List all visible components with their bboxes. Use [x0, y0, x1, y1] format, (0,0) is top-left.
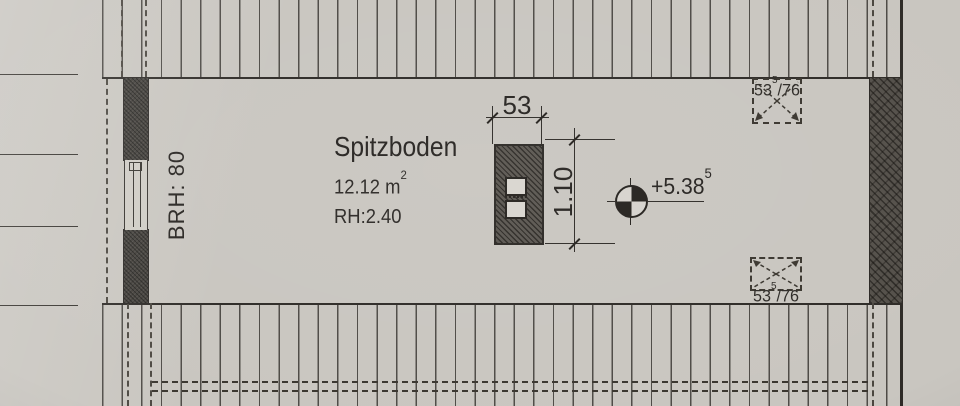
- hidden-wall-edge: [872, 303, 874, 406]
- chimney: [494, 144, 544, 245]
- flue-divider-dotted: [505, 196, 527, 198]
- room-area-value: 12.12 m: [334, 177, 400, 199]
- rwin-size: 53: [753, 287, 771, 306]
- hidden-wall-edge: [145, 0, 147, 77]
- room-name-label: Spitzboden: [334, 131, 457, 163]
- left-window: [124, 160, 148, 230]
- dim-extension-line: [545, 243, 615, 244]
- left-wall-lower: [124, 230, 148, 303]
- roof-window-top-label: 535/76: [748, 80, 807, 101]
- elevation-sup: 5: [705, 166, 712, 182]
- adjacent-structure-line: [0, 154, 78, 155]
- rwin-size: 53: [754, 81, 772, 100]
- elevation-crosshair-tick: [607, 201, 616, 202]
- elevation-crosshair-tick: [630, 178, 631, 186]
- hidden-eaves-line: [106, 79, 108, 303]
- rwin-sup: 5: [772, 74, 778, 86]
- right-gable-wall: [869, 78, 902, 303]
- adjacent-structure-line: [0, 305, 78, 306]
- adjacent-structure-line: [0, 226, 78, 227]
- hidden-wall-edge: [872, 0, 874, 77]
- collar-beam-dashed-line: [152, 381, 868, 383]
- dim-label-53: 53: [489, 90, 545, 121]
- elevation-marker-icon: [615, 185, 648, 218]
- elevation-crosshair-tick: [630, 217, 631, 225]
- flue-opening-lower: [505, 200, 527, 219]
- window-sill-height-label: BRH: 80: [159, 149, 195, 241]
- collar-beam-dashed-line: [152, 390, 868, 392]
- room-area-sup: 2: [400, 168, 406, 182]
- roof-rafters-top: [102, 0, 902, 79]
- hidden-wall-edge: [150, 303, 152, 406]
- rwin-rest: /76: [777, 287, 799, 306]
- flue-opening-upper: [505, 177, 527, 196]
- dim-extension-line: [545, 139, 615, 140]
- floor-plan-sheet: BRH: 80 Spitzboden 12.12 m2 RH:2.40 53 1…: [0, 0, 960, 406]
- roof-window-bottom-label: 535/76: [746, 286, 807, 307]
- adjacent-structure-line: [0, 74, 78, 75]
- elevation-value-label: +5.385: [651, 173, 712, 200]
- hidden-wall-edge: [127, 303, 129, 406]
- room-area-label: 12.12 m2: [334, 175, 407, 200]
- brh-text: BRH: 80: [164, 150, 190, 240]
- left-wall-upper: [124, 78, 148, 160]
- window-frame-block: [129, 162, 142, 171]
- dim-110-text: 1.10: [548, 167, 579, 218]
- rwin-rest: /76: [778, 81, 800, 100]
- elevation-leader-line: [647, 201, 704, 202]
- elevation-value: +5.38: [651, 173, 705, 199]
- dim-label-110: 1.10: [548, 160, 578, 224]
- rwin-sup: 5: [771, 280, 777, 292]
- hidden-wall-edge: [121, 0, 123, 77]
- window-glazing-line: [133, 163, 141, 227]
- room-height-label: RH:2.40: [334, 206, 402, 229]
